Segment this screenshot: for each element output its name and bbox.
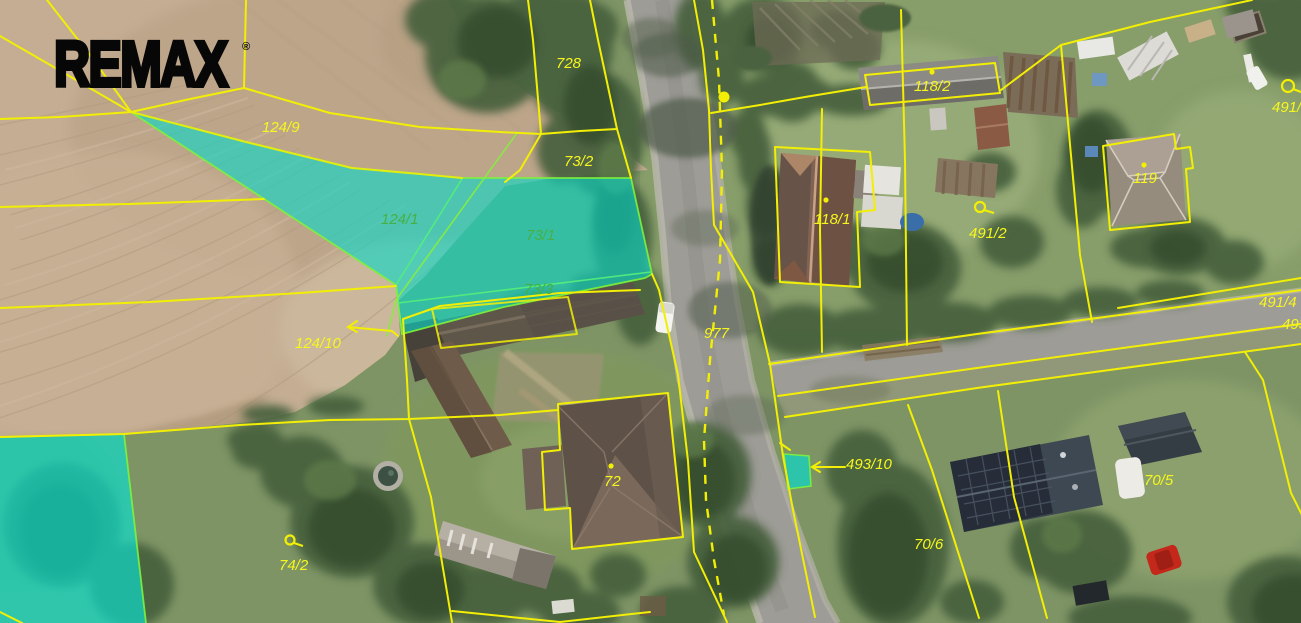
svg-text:491/4: 491/4 bbox=[1259, 294, 1297, 311]
svg-text:118/2: 118/2 bbox=[914, 78, 951, 95]
svg-text:118/1: 118/1 bbox=[814, 211, 850, 228]
svg-text:73/3: 73/3 bbox=[524, 281, 554, 298]
svg-text:REMAX: REMAX bbox=[54, 29, 228, 100]
svg-text:491/4: 491/4 bbox=[1272, 99, 1301, 116]
svg-text:®: ® bbox=[242, 41, 250, 53]
svg-text:70/6: 70/6 bbox=[914, 536, 944, 553]
svg-text:493/4: 493/4 bbox=[1282, 316, 1301, 333]
svg-text:124/10: 124/10 bbox=[295, 335, 342, 352]
svg-text:977: 977 bbox=[704, 325, 730, 342]
svg-text:493/10: 493/10 bbox=[846, 456, 893, 473]
svg-text:728: 728 bbox=[556, 55, 582, 72]
svg-text:124/1: 124/1 bbox=[381, 211, 419, 228]
svg-text:70/5: 70/5 bbox=[1144, 472, 1174, 489]
svg-text:74/2: 74/2 bbox=[279, 557, 309, 574]
svg-text:124/9: 124/9 bbox=[262, 119, 300, 136]
svg-text:119: 119 bbox=[1133, 170, 1158, 187]
svg-text:491/2: 491/2 bbox=[969, 225, 1007, 242]
svg-text:72: 72 bbox=[604, 473, 621, 490]
svg-text:73/2: 73/2 bbox=[564, 153, 594, 170]
svg-text:73/1: 73/1 bbox=[526, 227, 555, 244]
